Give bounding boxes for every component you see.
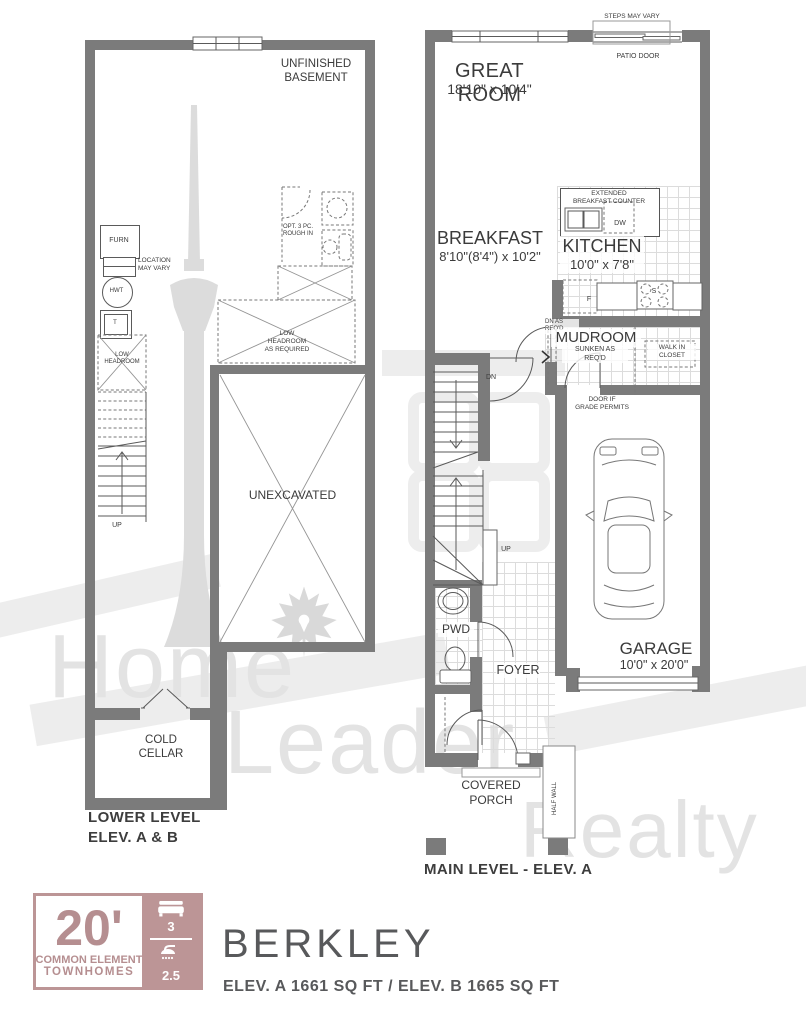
- fridge-label: F: [584, 296, 594, 305]
- porch-post: [426, 838, 446, 855]
- wall: [700, 30, 710, 666]
- steps-note: STEPS MAY VARY: [588, 13, 676, 21]
- beds-count: 3: [167, 919, 174, 934]
- unexcavated-area: [210, 365, 375, 652]
- roof-band: [544, 664, 806, 756]
- half-wall-label: HALF WALL: [552, 770, 559, 826]
- wall: [85, 40, 195, 50]
- wall: [85, 40, 95, 810]
- cold-cellar-label: COLD CELLAR: [126, 733, 196, 761]
- watermark: Home Leader Realty: [0, 0, 806, 1030]
- model-name: BERKLEY: [222, 922, 435, 967]
- furnace-location-note: LOCATION MAY VARY: [138, 257, 202, 273]
- room-label-garage: GARAGE: [618, 639, 694, 660]
- wall: [435, 353, 483, 365]
- wall: [600, 385, 710, 395]
- logo-line1: COMMON ELEMENT: [36, 954, 143, 966]
- shower-icon: [159, 942, 183, 966]
- wall: [555, 385, 567, 676]
- room-label-covered-porch: COVERED PORCH: [452, 778, 530, 807]
- rough-in-label: OPT. 3 PC. ROUGH IN: [283, 224, 327, 239]
- wall: [518, 753, 555, 767]
- furnace-shelf: [103, 266, 136, 277]
- baths-count: 2.5: [162, 968, 180, 983]
- unexcavated-label: UNEXCAVATED: [230, 488, 355, 503]
- wall: [478, 353, 490, 461]
- dn-label: DN: [481, 374, 501, 383]
- up-label-basement: UP: [105, 522, 129, 531]
- mudroom-note: SUNKEN AS REQ'D: [562, 346, 628, 363]
- low-headroom-label: LOW HEADROOM: [96, 352, 148, 367]
- dims-kitchen: 10'0" x 7'8": [560, 257, 644, 273]
- foyer-floor: [482, 562, 555, 753]
- stove-label: S: [649, 288, 659, 297]
- room-label-foyer: FOYER: [496, 663, 540, 678]
- tank-label: T: [100, 320, 130, 327]
- room-label-unfinished-basement: UNFINISHED BASEMENT: [262, 57, 370, 85]
- room-label-kitchen: KITCHEN: [560, 236, 644, 258]
- dims-great-room: 18'10" x 10'4": [432, 81, 547, 98]
- wall: [552, 280, 563, 316]
- room-label-breakfast: BREAKFAST: [428, 228, 552, 250]
- wall: [425, 30, 435, 767]
- dims-breakfast: 8'10"(8'4") x 10'2": [424, 249, 556, 265]
- wall: [568, 30, 593, 42]
- room-label-pwd: PWD: [438, 622, 474, 637]
- grade-door-note: DOOR IF GRADE PERMITS: [570, 396, 634, 412]
- logo-size: 20': [55, 905, 123, 953]
- walk-in-closet-label: WALK IN CLOSET: [648, 344, 696, 360]
- logo-line2: TOWNHOMES: [44, 966, 135, 978]
- furnace-label: FURN: [100, 237, 138, 246]
- logo-box: 20' COMMON ELEMENT TOWNHOMES 3 2.5: [33, 893, 203, 990]
- bracket-shape: [478, 470, 550, 552]
- bracket-shape: [408, 392, 480, 474]
- wall: [190, 708, 227, 720]
- wall: [566, 668, 580, 692]
- wall: [470, 580, 482, 622]
- floorplan-page: Home Leader Realty FURN LOCATION MAY VAR…: [0, 0, 806, 1030]
- model-specs: ELEV. A 1661 SQ FT / ELEV. B 1665 SQ FT: [223, 978, 559, 996]
- up-label-main: UP: [496, 546, 516, 555]
- main-level-caption: MAIN LEVEL - ELEV. A: [424, 860, 604, 880]
- logo-divider: [150, 938, 192, 940]
- wall: [260, 40, 375, 50]
- bracket-shape: [408, 470, 480, 552]
- bed-icon: [158, 901, 184, 917]
- counter-label: EXTENDED BREAKFAST COUNTER: [562, 190, 656, 206]
- room-label-mudroom: MUDROOM: [551, 329, 641, 347]
- hwt-label: HWT: [102, 288, 131, 295]
- wall: [430, 753, 478, 767]
- low-headroom-required-label: LOW HEADROOM AS REQUIRED: [252, 330, 322, 354]
- wall: [210, 642, 227, 810]
- patio-door-label: PATIO DOOR: [600, 53, 676, 62]
- lower-level-caption: LOWER LEVEL ELEV. A & B: [88, 808, 228, 849]
- dishwasher-label: DW: [608, 220, 632, 229]
- dims-garage: 10'0" x 20'0": [608, 658, 700, 673]
- wall: [435, 685, 482, 694]
- porch-post: [548, 838, 568, 855]
- wall: [470, 694, 482, 712]
- wall: [95, 708, 140, 720]
